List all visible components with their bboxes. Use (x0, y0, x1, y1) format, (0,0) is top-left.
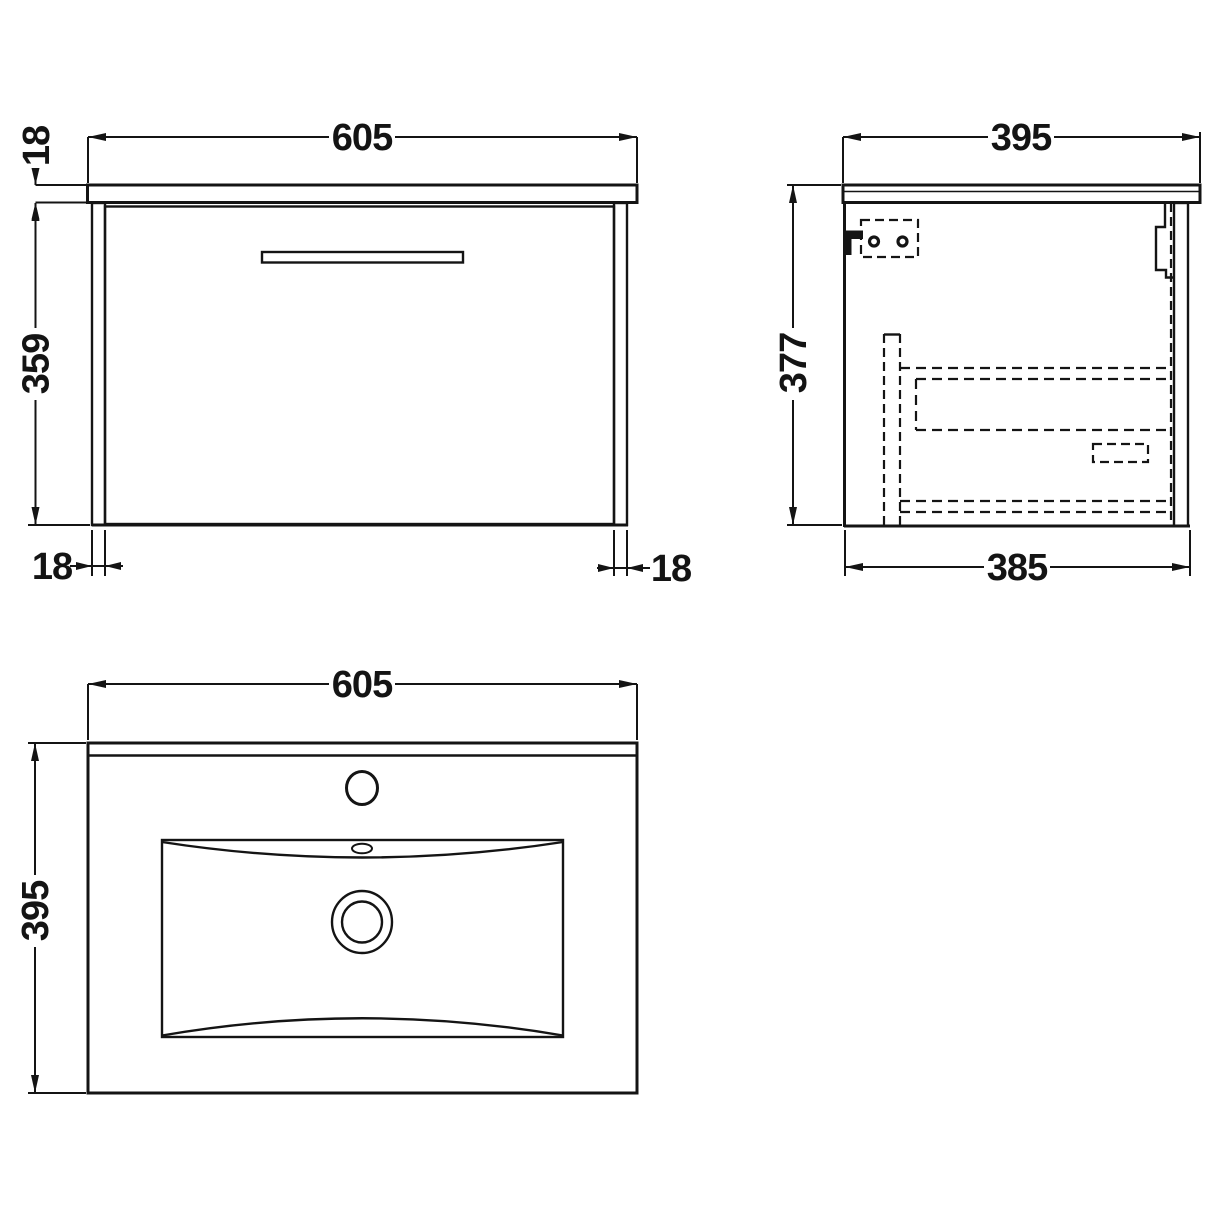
front-left-panel-label: 18 (32, 546, 72, 588)
front-height-dimension: 359 (16, 203, 91, 525)
basin-plan-view: 605 395 (15, 664, 637, 1093)
front-right-panel-label: 18 (651, 548, 691, 590)
front-drawer-handle (262, 252, 463, 263)
front-drawer-front (105, 207, 614, 525)
dimension-arrow (627, 564, 643, 572)
side-height-dimension: 377 (773, 185, 842, 525)
bowl-outline (162, 840, 563, 1037)
vanity-dimension-drawing: 605 18 359 18 (0, 0, 1224, 1224)
dimension-arrow (32, 507, 40, 525)
side-worktop (843, 185, 1200, 203)
dimension-arrow (1182, 133, 1200, 141)
front-right-side-panel (614, 203, 627, 525)
front-worktop (88, 185, 638, 203)
dimension-arrow (598, 564, 614, 572)
front-elevation-view: 605 18 359 18 (16, 117, 692, 590)
plan-depth-dimension: 395 (15, 743, 86, 1093)
dimension-arrow (31, 1075, 39, 1093)
overflow-hole (352, 844, 372, 854)
front-worktop-thickness-dimension: 18 (16, 122, 87, 220)
front-width-dimension: 605 (88, 117, 637, 183)
side-height-label: 377 (773, 333, 815, 393)
waste-drain-inner (342, 902, 382, 943)
front-width-label: 605 (332, 117, 393, 159)
dimension-arrow (619, 133, 637, 141)
dimension-arrow (88, 133, 106, 141)
side-section-view: 395 377 385 (773, 117, 1200, 589)
basin-bowl (162, 840, 563, 1037)
front-right-panel-dimension: 18 (597, 530, 691, 590)
wall-hanging-bracket (843, 220, 918, 257)
dimension-arrow (31, 743, 39, 761)
bracket-screw-hole (870, 237, 879, 246)
front-height-label: 359 (16, 334, 58, 394)
front-left-side-panel (92, 203, 105, 525)
side-cabinet-depth-label: 385 (987, 547, 1048, 589)
dimension-arrow (32, 203, 40, 221)
dimension-arrow (619, 680, 637, 688)
front-worktop-thickness-label: 18 (16, 126, 58, 166)
dimension-arrow (845, 563, 863, 571)
tap-hole (347, 772, 378, 805)
dimension-arrow (789, 507, 797, 525)
side-hidden-drawer-box (884, 334, 1171, 525)
dimension-arrow (843, 133, 861, 141)
plan-depth-label: 395 (15, 880, 57, 941)
side-front-panel (1174, 203, 1188, 526)
plan-width-dimension: 605 (88, 664, 637, 740)
dimension-arrow (88, 680, 106, 688)
side-depth-label: 395 (991, 117, 1052, 159)
drawer-runner-hidden (1093, 444, 1148, 462)
bracket-screw-hole (898, 237, 907, 246)
plan-width-label: 605 (332, 664, 393, 706)
side-cabinet-depth-dimension: 385 (845, 530, 1190, 589)
side-depth-dimension: 395 (843, 117, 1200, 183)
dimension-arrow (789, 185, 797, 203)
bowl-bottom-curve (162, 1018, 563, 1035)
dimension-arrow (105, 562, 121, 570)
dimension-arrow (32, 168, 40, 185)
front-left-panel-dimension: 18 (32, 530, 123, 588)
dimension-arrow (1172, 563, 1190, 571)
dimension-arrow (76, 562, 92, 570)
basin-outline (88, 743, 637, 1093)
technical-drawing-page: 605 18 359 18 (0, 0, 1224, 1224)
